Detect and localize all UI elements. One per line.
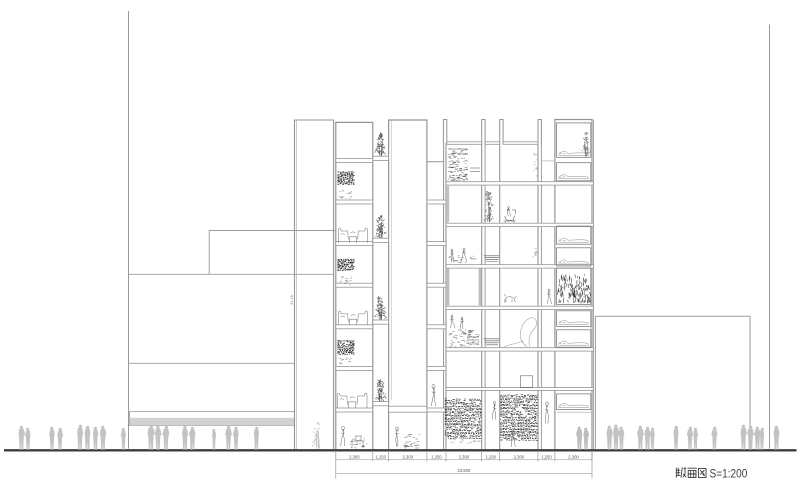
svg-text:1,230: 1,230	[485, 455, 496, 460]
svg-text:1,250: 1,250	[541, 455, 552, 460]
svg-text:2,300: 2,300	[568, 455, 579, 460]
svg-text:S=1:200: S=1:200	[710, 468, 748, 481]
svg-text:2,300: 2,300	[403, 455, 414, 460]
svg-text:2,300: 2,300	[349, 455, 360, 460]
svg-text:1,250: 1,250	[431, 455, 442, 460]
svg-text:1,250: 1,250	[375, 455, 386, 460]
svg-text:23,500: 23,500	[457, 468, 470, 473]
svg-text:2,300: 2,300	[514, 455, 525, 460]
svg-text:2,300: 2,300	[459, 455, 470, 460]
svg-text:41,39: 41,39	[289, 294, 294, 305]
